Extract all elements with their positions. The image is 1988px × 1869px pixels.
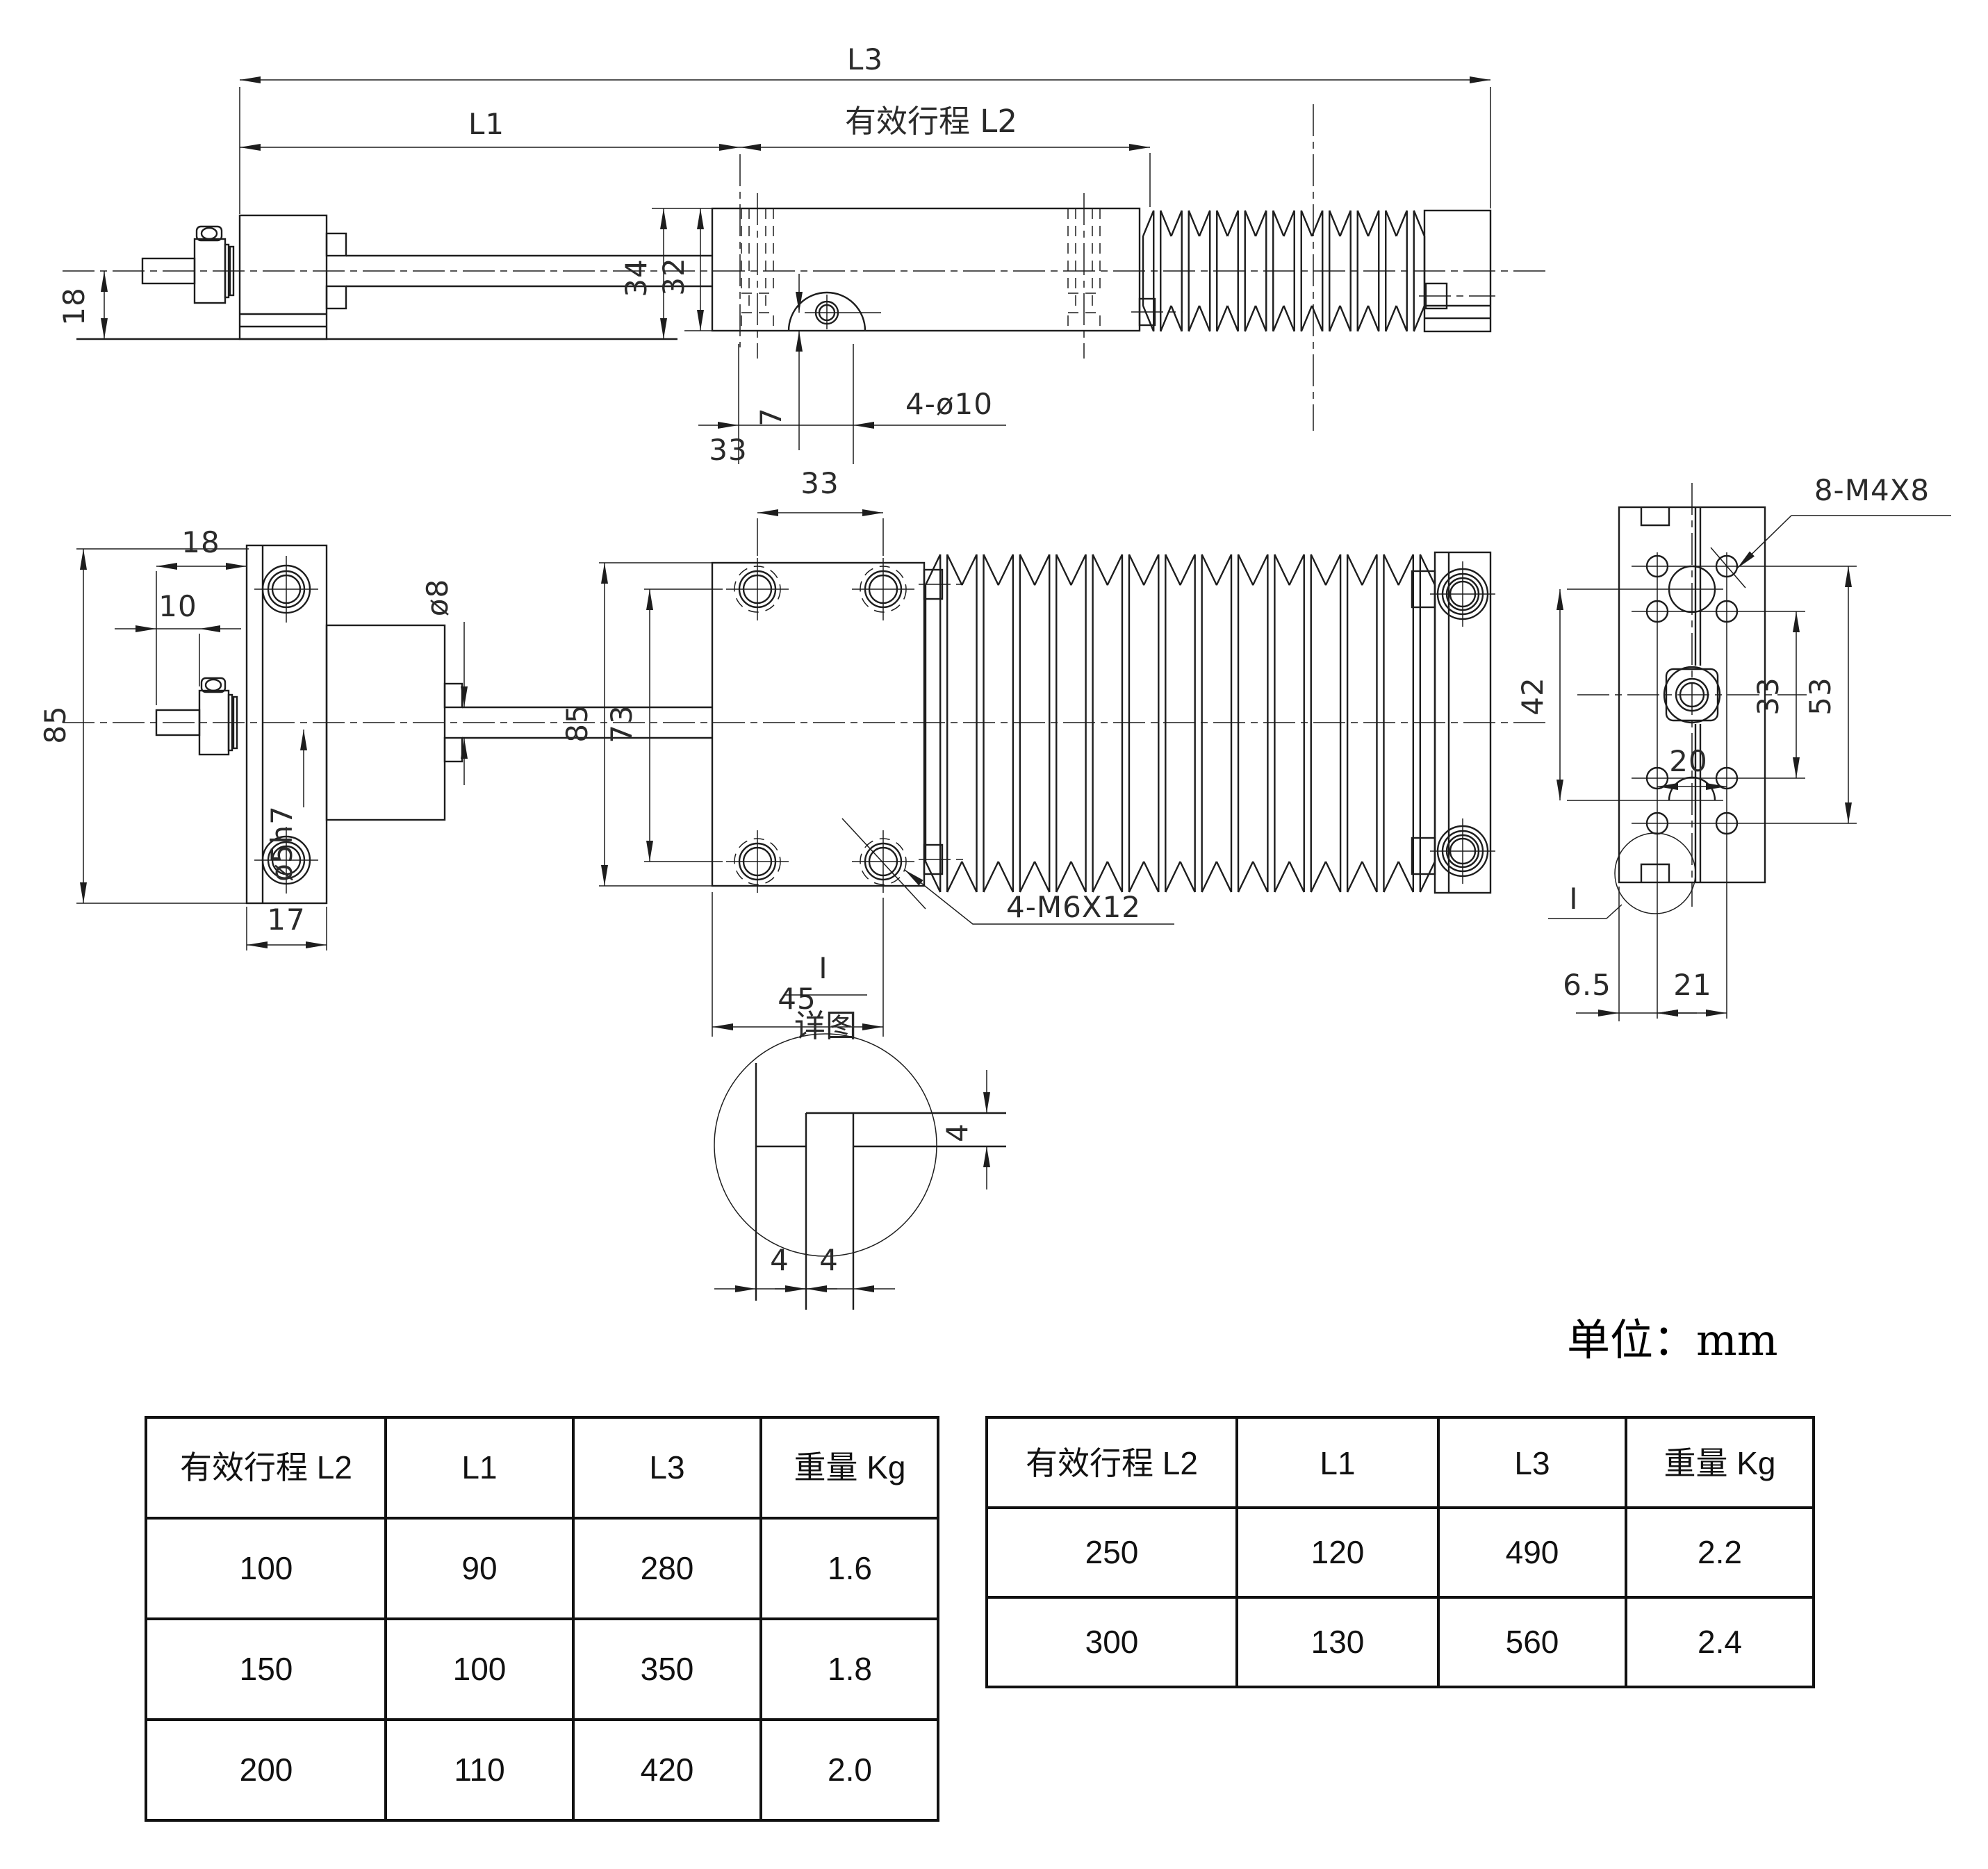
cell: 2.0	[828, 1752, 872, 1788]
dim-73: 73	[605, 705, 639, 743]
plan-view: 85 18 10 ø8 ø5h7 17 85 73 33 45 4-M6X12	[38, 466, 1550, 1037]
cell: 300	[1085, 1624, 1139, 1660]
side-shaft-and-nut	[142, 227, 233, 303]
dim-4-left: 4	[770, 1243, 789, 1277]
table-row: 100 90 280 1.6	[240, 1550, 872, 1586]
dim-21: 21	[1673, 968, 1711, 1002]
dim-dia5h7: ø5h7	[265, 805, 299, 882]
dim-10: 10	[158, 589, 197, 623]
table-row: 200 110 420 2.0	[240, 1752, 872, 1788]
cell: 420	[641, 1752, 694, 1788]
dim-4-m6x12-holes: 4-M6X12	[1006, 890, 1141, 924]
dim-53: 53	[1803, 677, 1837, 715]
dim-85-mid: 85	[560, 704, 594, 742]
dim-4-depth: 4	[940, 1123, 974, 1142]
dim-34: 34	[619, 258, 653, 297]
table-header: L1	[1320, 1445, 1355, 1481]
bellows-plan	[926, 554, 1435, 892]
dim-42: 42	[1515, 677, 1550, 715]
detail-title-ref: I	[819, 951, 828, 985]
table-header: L3	[649, 1449, 684, 1485]
dim-33-side: 33	[709, 433, 747, 467]
plan-plate-holes	[726, 558, 914, 893]
dim-4-mid: 4	[819, 1243, 839, 1277]
cell: 90	[461, 1550, 497, 1586]
dim-85-left: 85	[38, 705, 72, 743]
plan-dimensions	[76, 513, 1174, 1037]
table-header: 有效行程 L2	[180, 1449, 352, 1485]
dim-l1: L1	[468, 107, 504, 141]
cell: 2.2	[1698, 1534, 1742, 1570]
cell: 150	[240, 1651, 293, 1687]
detail-ref-i: I	[1569, 882, 1578, 916]
cell: 110	[454, 1752, 504, 1788]
cell: 250	[1085, 1534, 1139, 1570]
dim-32: 32	[657, 257, 691, 295]
side-view: L3 L1 有效行程 L2 34 32 18 7 33 4-ø10	[57, 42, 1550, 467]
dim-33-end: 33	[1751, 677, 1785, 715]
dim-18-plan: 18	[181, 525, 220, 559]
cell: 560	[1506, 1624, 1559, 1660]
detail-title-caption: 详图	[794, 1007, 857, 1044]
cell: 2.4	[1698, 1624, 1742, 1660]
cell: 490	[1506, 1534, 1559, 1570]
dim-33-plan: 33	[800, 466, 839, 500]
dim-l3: L3	[847, 42, 883, 76]
spec-table-left: 有效行程 L2 L1 L3 重量 Kg 100 90 280 1.6 150 1…	[146, 1417, 938, 1820]
table-header: 有效行程 L2	[1026, 1445, 1198, 1481]
table-row: 150 100 350 1.8	[240, 1651, 872, 1687]
cell: 100	[453, 1651, 507, 1687]
spec-table-right: 有效行程 L2 L1 L3 重量 Kg 250 120 490 2.2 300 …	[987, 1417, 1814, 1687]
side-dimensions	[104, 80, 1490, 464]
table-header: 重量 Kg	[794, 1449, 905, 1485]
unit-note: 单位：mm	[1567, 1315, 1778, 1365]
detail-view: I 详图 4 4 4	[714, 951, 1006, 1310]
dim-6-5: 6.5	[1563, 968, 1611, 1002]
detail-section	[714, 1034, 1006, 1310]
dim-17: 17	[267, 903, 305, 937]
cell: 1.8	[828, 1651, 872, 1687]
dim-7: 7	[754, 407, 788, 427]
cell: 350	[641, 1651, 694, 1687]
cell: 280	[641, 1550, 694, 1586]
cell: 130	[1311, 1624, 1365, 1660]
cell: 1.6	[828, 1550, 872, 1586]
dim-4-dia10-holes: 4-ø10	[905, 387, 993, 421]
table-header: L3	[1514, 1445, 1550, 1481]
plan-mounting-plate	[712, 563, 942, 886]
dim-8-m4x8-holes: 8-M4X8	[1814, 473, 1930, 507]
table-row: 300 130 560 2.4	[1085, 1624, 1742, 1660]
engineering-drawing: L3 L1 有效行程 L2 34 32 18 7 33 4-ø10	[0, 0, 1988, 1869]
table-header: L1	[461, 1449, 497, 1485]
cell: 100	[240, 1550, 293, 1586]
dim-20: 20	[1669, 744, 1707, 778]
plan-shaft-and-nut	[156, 678, 237, 755]
cell: 200	[240, 1752, 293, 1788]
drawing-page: L3 L1 有效行程 L2 34 32 18 7 33 4-ø10	[0, 0, 1988, 1869]
dim-l2-stroke: 有效行程 L2	[845, 103, 1017, 140]
cell: 120	[1311, 1534, 1365, 1570]
end-view: 42 33 53 20 6.5 21 8-M4X8 I	[1515, 473, 1951, 1021]
side-carriage-hidden-holes	[741, 208, 1100, 331]
dim-18-side: 18	[57, 287, 91, 325]
table-header: 重量 Kg	[1663, 1445, 1775, 1481]
dim-dia8: ø8	[420, 579, 454, 616]
table-row: 250 120 490 2.2	[1085, 1534, 1742, 1570]
